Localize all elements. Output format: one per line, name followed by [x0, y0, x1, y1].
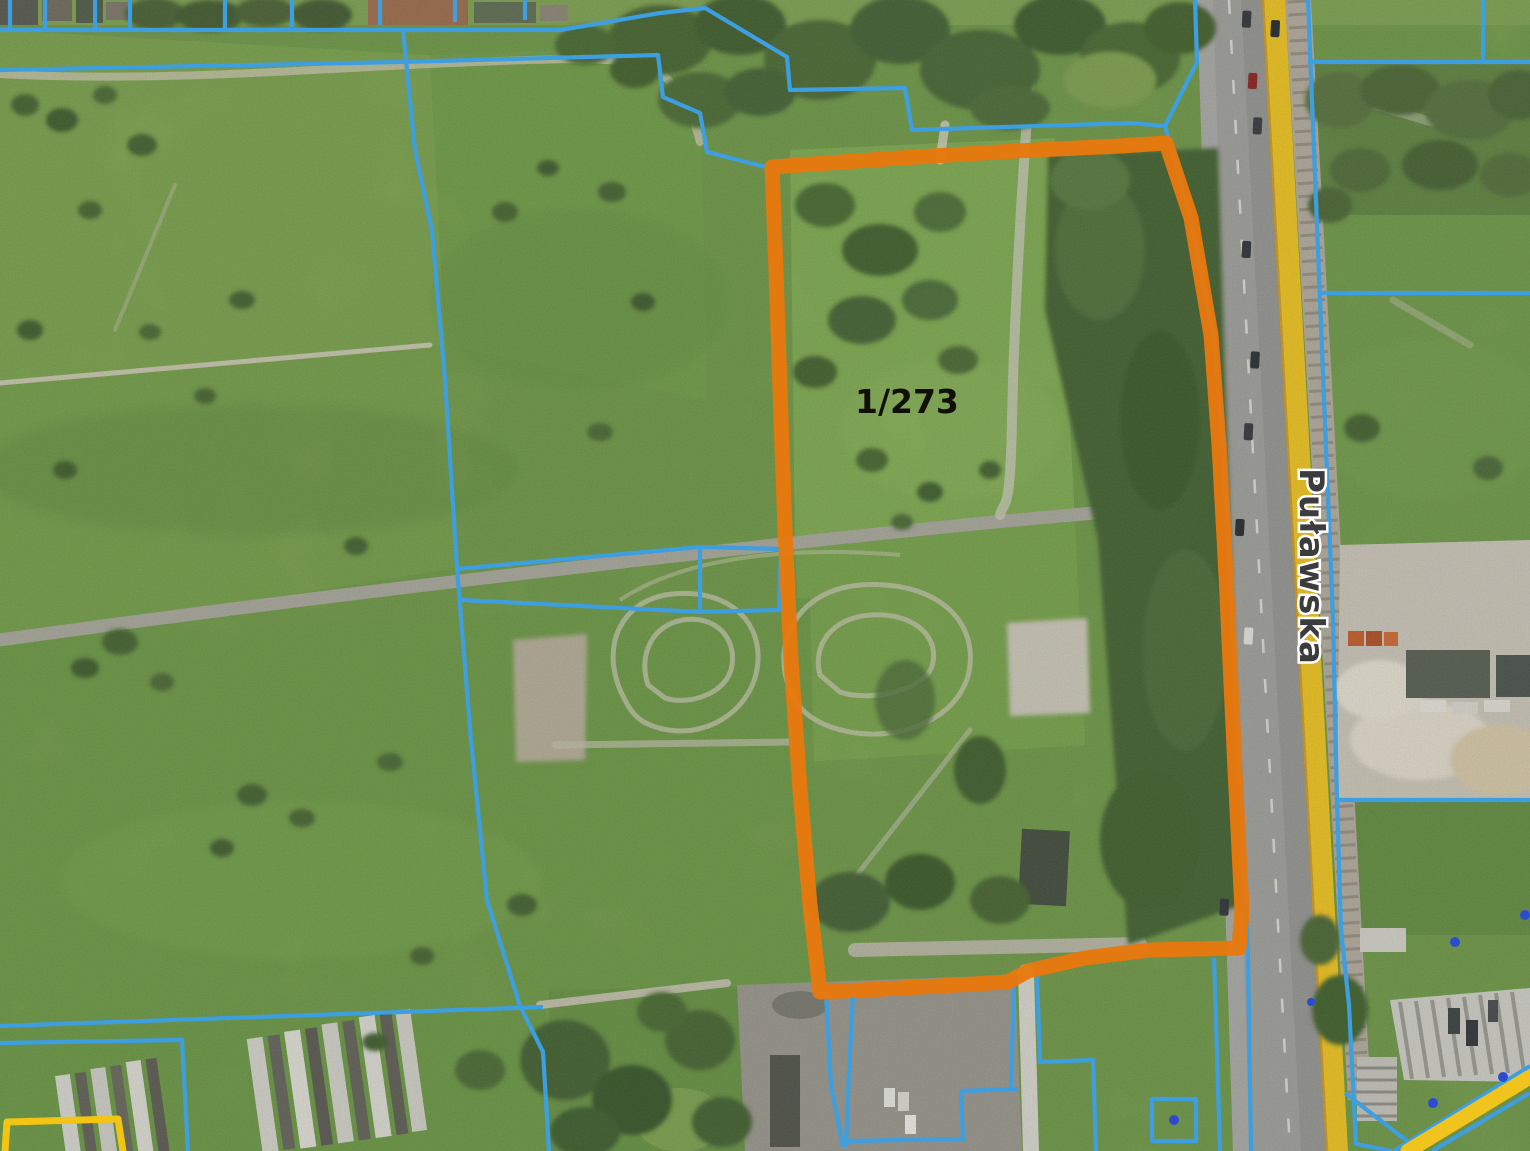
aerial-map-canvas[interactable]: 1/273 Puławska: [0, 0, 1530, 1151]
street-name-label: Puławska: [1291, 468, 1331, 666]
map-viewport[interactable]: 1/273 Puławska: [0, 0, 1530, 1151]
parcel-number-label: 1/273: [855, 382, 959, 421]
plot-marker-dot: [1169, 1115, 1179, 1125]
